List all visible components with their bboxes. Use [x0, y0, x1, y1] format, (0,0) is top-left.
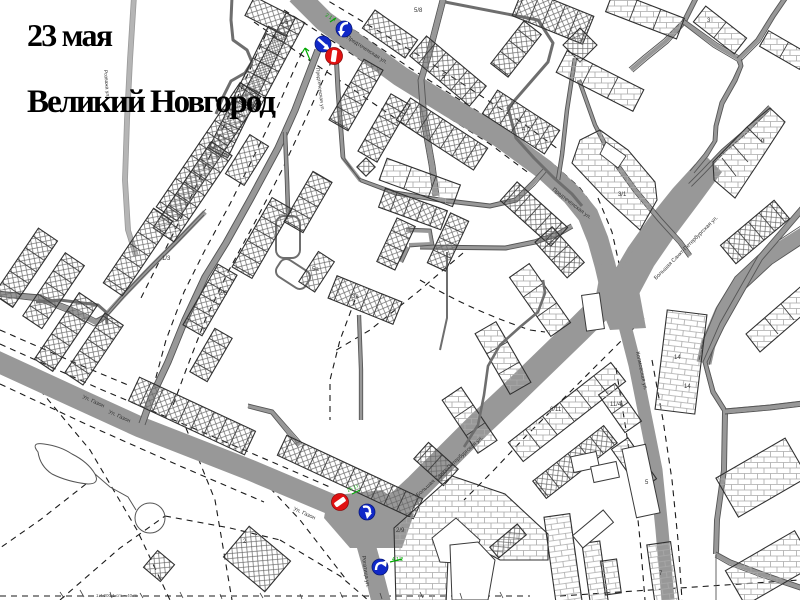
svg-text:1/3: 1/3	[162, 256, 171, 262]
svg-text:3/1: 3/1	[618, 192, 627, 198]
svg-text:4 1 2: 4 1 2	[392, 557, 403, 563]
svg-text:2/9: 2/9	[396, 528, 405, 534]
svg-text:3а: 3а	[352, 294, 359, 300]
svg-text:11/4: 11/4	[610, 402, 622, 408]
svg-text:5а: 5а	[312, 267, 319, 273]
svg-text:14: 14	[684, 384, 691, 390]
svg-text:1/5: 1/5	[280, 20, 289, 26]
svg-text:14: 14	[674, 355, 681, 361]
svg-text:6/11: 6/11	[550, 407, 562, 413]
svg-text:23 мая: 23 мая	[27, 17, 113, 53]
svg-text:5/8: 5/8	[414, 8, 423, 14]
svg-text:Великий Новгород: Великий Новгород	[27, 84, 276, 120]
svg-text:1:4 000 1 cm = 40 m: 1:4 000 1 cm = 40 m	[96, 593, 137, 598]
svg-text:2/5: 2/5	[219, 291, 228, 297]
